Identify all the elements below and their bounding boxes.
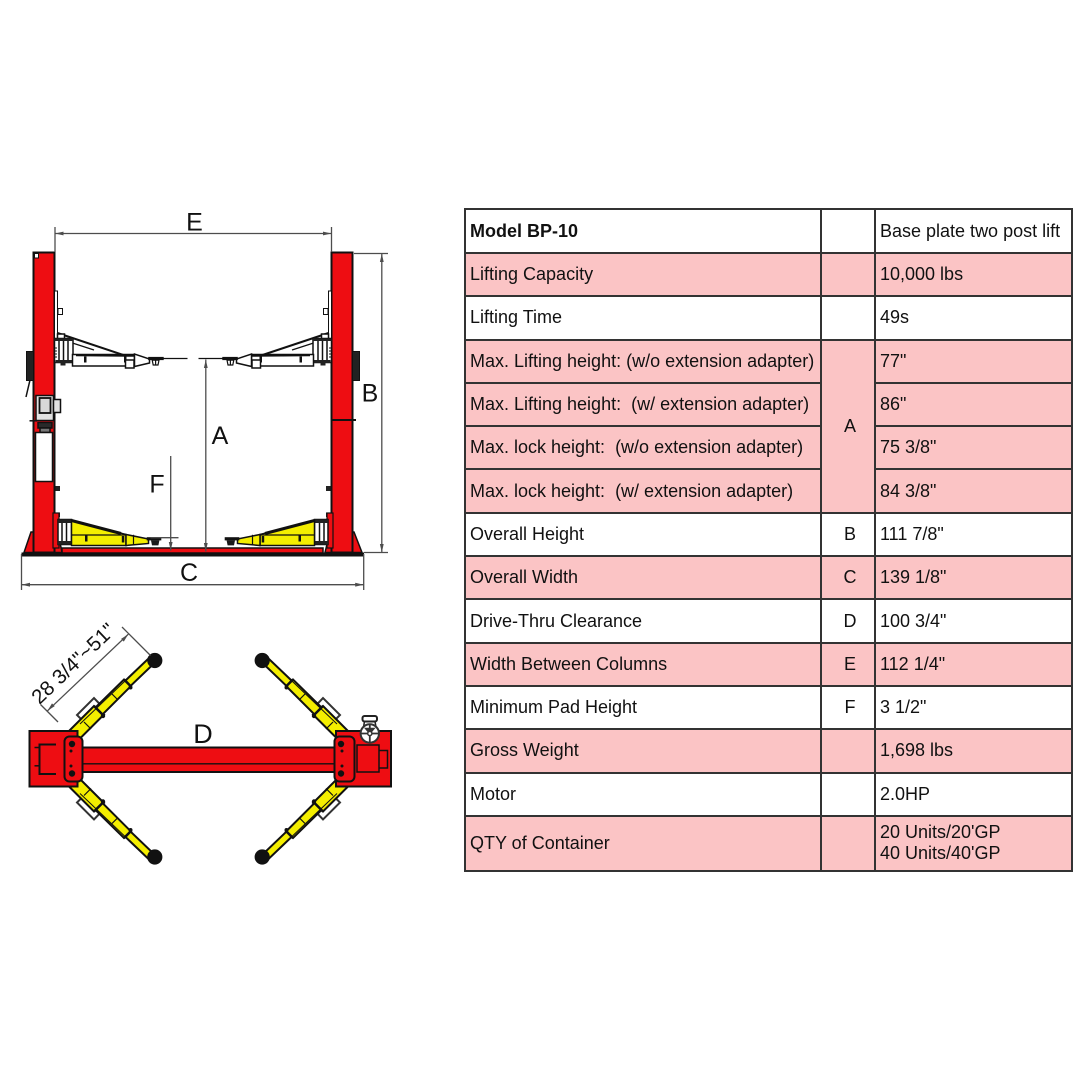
svg-text:28 3/4"~51": 28 3/4"~51" [27, 619, 120, 709]
svg-text:D: D [193, 719, 213, 749]
svg-text:B: B [362, 380, 379, 408]
svg-text:F: F [149, 471, 164, 499]
svg-text:E: E [186, 209, 203, 237]
svg-text:A: A [212, 422, 229, 450]
svg-text:C: C [180, 559, 198, 587]
